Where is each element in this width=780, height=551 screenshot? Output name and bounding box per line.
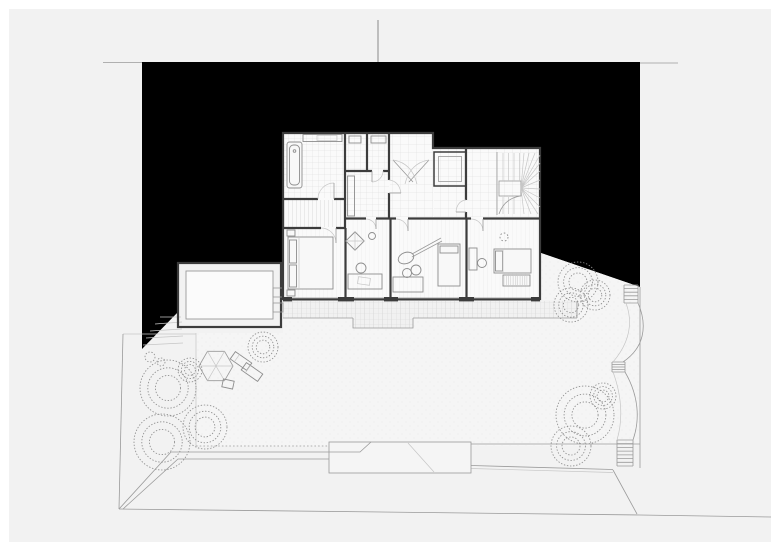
house-plan bbox=[283, 133, 540, 301]
bedroom2-floor bbox=[347, 220, 389, 298]
bed bbox=[494, 249, 531, 273]
bedroom1-furniture bbox=[287, 230, 333, 296]
floor-plan-page bbox=[0, 0, 780, 551]
hall-floor bbox=[390, 134, 433, 217]
floor-plan-svg bbox=[0, 0, 780, 551]
dressing-wardrobe bbox=[284, 200, 344, 227]
driveway-ramp bbox=[329, 442, 471, 473]
garage-annex bbox=[178, 263, 283, 327]
single-bed bbox=[438, 244, 460, 286]
